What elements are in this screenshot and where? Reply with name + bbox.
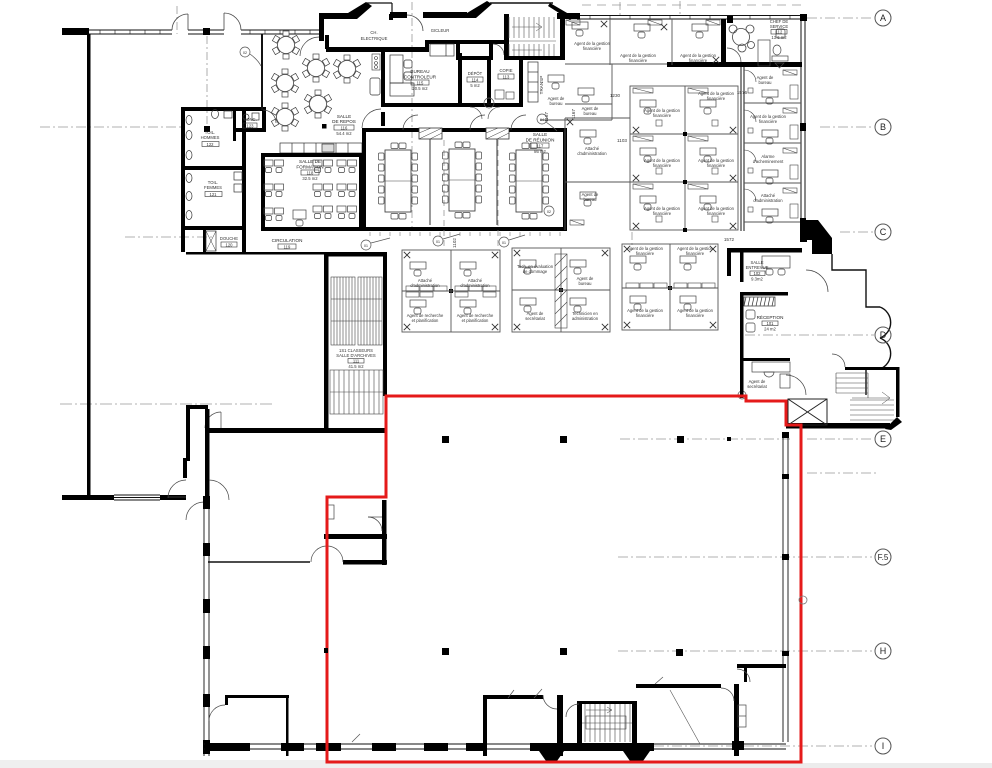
svg-text:bureau: bureau — [549, 101, 563, 106]
svg-text:1103: 1103 — [617, 138, 627, 143]
svg-text:24 m2: 24 m2 — [764, 327, 776, 332]
svg-text:d'administration: d'administration — [460, 283, 490, 288]
svg-text:123: 123 — [247, 124, 255, 129]
svg-text:et planification: et planification — [412, 318, 439, 323]
svg-text:DOUCHE: DOUCHE — [220, 236, 238, 241]
svg-text:C: C — [880, 227, 887, 237]
svg-text:et planification: et planification — [462, 318, 489, 323]
svg-text:SALLE: SALLE — [533, 132, 547, 137]
svg-text:bureau: bureau — [758, 80, 772, 85]
svg-text:119: 119 — [284, 245, 291, 250]
svg-text:secrétariat: secrétariat — [525, 316, 545, 321]
svg-text:02: 02 — [243, 51, 247, 55]
svg-text:101: 101 — [767, 321, 775, 326]
svg-text:H: H — [880, 646, 887, 656]
svg-text:d'administration: d'administration — [577, 151, 607, 156]
svg-text:B: B — [880, 122, 886, 132]
svg-text:01: 01 — [502, 241, 506, 245]
svg-text:116: 116 — [341, 126, 348, 131]
svg-text:120: 120 — [226, 243, 234, 248]
svg-text:TRANSP: TRANSP — [539, 76, 544, 95]
svg-text:financière: financière — [689, 58, 708, 63]
svg-text:E: E — [880, 434, 886, 444]
svg-text:118: 118 — [307, 171, 314, 176]
svg-text:04: 04 — [540, 118, 544, 122]
svg-text:financière: financière — [636, 313, 655, 318]
svg-text:d'administration: d'administration — [410, 283, 440, 288]
svg-text:DE REPOS: DE REPOS — [332, 119, 356, 124]
svg-text:RÉCEPTION: RÉCEPTION — [757, 314, 784, 320]
svg-text:ENTREVUE: ENTREVUE — [746, 265, 769, 270]
svg-text:01: 01 — [436, 240, 440, 244]
svg-text:112: 112 — [776, 30, 783, 35]
svg-text:32.5 m2: 32.5 m2 — [302, 176, 318, 181]
svg-text:financière: financière — [629, 58, 648, 63]
svg-text:1167: 1167 — [571, 109, 576, 119]
svg-text:BUREAU: BUREAU — [410, 69, 429, 74]
svg-text:bureau: bureau — [578, 281, 592, 286]
svg-text:115: 115 — [417, 81, 424, 86]
svg-text:9.3m2: 9.3m2 — [751, 277, 763, 282]
svg-text:financière: financière — [759, 119, 778, 124]
svg-text:41.5 m2: 41.5 m2 — [348, 364, 364, 369]
svg-text:bureau: bureau — [583, 197, 597, 202]
svg-text:bureau: bureau — [583, 111, 597, 116]
svg-text:financière: financière — [707, 96, 726, 101]
svg-text:financière: financière — [653, 163, 672, 168]
svg-text:20.5 m2: 20.5 m2 — [412, 86, 428, 91]
svg-text:administration: administration — [572, 316, 599, 321]
svg-text:111: 111 — [353, 359, 360, 364]
svg-text:secrétariat: secrétariat — [747, 384, 767, 389]
svg-text:d'administration: d'administration — [753, 198, 783, 203]
svg-text:FORMATION: FORMATION — [296, 165, 323, 170]
svg-text:02: 02 — [547, 210, 551, 214]
svg-text:COPIE: COPIE — [499, 68, 512, 73]
svg-text:A: A — [880, 13, 886, 23]
svg-text:5 m2: 5 m2 — [470, 83, 480, 88]
svg-text:F.5: F.5 — [878, 553, 889, 562]
svg-text:financière: financière — [653, 113, 672, 118]
svg-text:CIRCULATION: CIRCULATION — [272, 238, 303, 243]
svg-text:financière: financière — [686, 251, 705, 256]
svg-text:SERVICE: SERVICE — [770, 24, 789, 29]
svg-text:117: 117 — [537, 144, 544, 149]
svg-text:1572: 1572 — [724, 237, 735, 242]
svg-text:financière: financière — [583, 46, 602, 51]
svg-text:113: 113 — [503, 75, 510, 80]
svg-text:financière: financière — [653, 211, 672, 216]
svg-text:DE RÉUNION: DE RÉUNION — [526, 137, 555, 143]
svg-text:D: D — [880, 330, 887, 340]
svg-text:CONC.: CONC. — [243, 117, 257, 122]
svg-text:02: 02 — [487, 102, 491, 106]
svg-text:54.4 m2: 54.4 m2 — [336, 131, 352, 136]
svg-text:SALLE D'ARCHIVES: SALLE D'ARCHIVES — [336, 353, 376, 358]
svg-text:01: 01 — [364, 244, 368, 248]
svg-text:financière: financière — [686, 313, 705, 318]
svg-text:I: I — [882, 741, 885, 751]
svg-text:d'acheminement: d'acheminement — [753, 159, 784, 164]
svg-text:1102: 1102 — [452, 238, 457, 248]
svg-text:financière: financière — [707, 163, 726, 168]
svg-text:DÉPÔT: DÉPÔT — [468, 71, 483, 76]
svg-text:13.6 m2: 13.6 m2 — [771, 35, 787, 40]
svg-text:CONTROLEUR: CONTROLEUR — [404, 75, 437, 80]
svg-text:HOMMES: HOMMES — [201, 135, 220, 140]
svg-text:financière: financière — [636, 251, 655, 256]
svg-text:ELECTRIQUE: ELECTRIQUE — [361, 36, 388, 41]
svg-text:CH.: CH. — [370, 30, 377, 35]
svg-text:1576: 1576 — [737, 90, 748, 95]
svg-text:financière: financière — [707, 211, 726, 216]
svg-text:102: 102 — [754, 271, 762, 276]
svg-text:114: 114 — [472, 78, 479, 83]
svg-text:de dommage: de dommage — [523, 269, 548, 274]
svg-text:1230: 1230 — [610, 93, 621, 98]
svg-text:GICLEUR: GICLEUR — [431, 28, 450, 33]
svg-text:FEMMES: FEMMES — [204, 185, 222, 190]
